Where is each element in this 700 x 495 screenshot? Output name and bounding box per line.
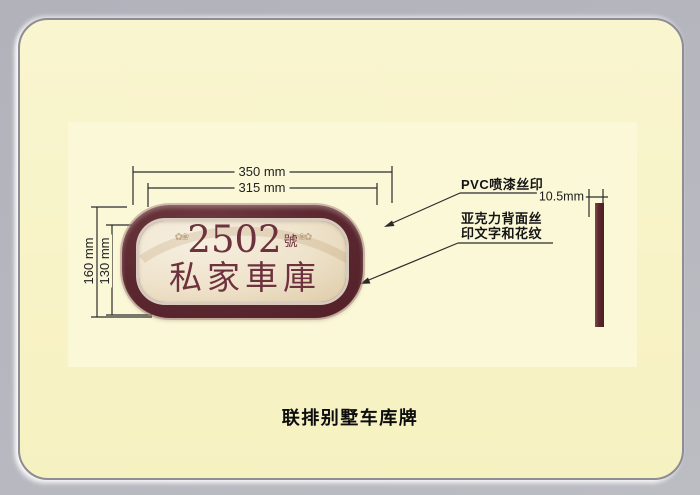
sign-side-view-bar xyxy=(595,203,604,327)
sign-number-suffix: 號 xyxy=(284,234,298,250)
floral-ornament-left: ✿❀ xyxy=(175,232,188,243)
dim-label-outer-width: 350 mm xyxy=(235,165,290,179)
sign-name-text: 私家車庫 xyxy=(139,257,346,299)
annotation-pvc: PVC喷漆丝印 xyxy=(461,177,543,192)
annotation-acrylic-line1: 亚克力背面丝 xyxy=(461,211,542,226)
sign-number-line: ✿❀2502號❀✿ xyxy=(139,221,346,262)
dim-label-inner-width: 315 mm xyxy=(235,181,290,195)
floral-ornament-right: ❀✿ xyxy=(298,232,311,243)
annotation-acrylic-line2: 印文字和花纹 xyxy=(461,226,542,241)
design-proof-canvas: ✿❀2502號❀✿ 私家車庫 350 mm 315 mm 160 mm 130 … xyxy=(0,0,700,495)
proof-caption: 联排别墅车库牌 xyxy=(0,404,700,430)
dim-label-thickness: 10.5mm xyxy=(537,191,586,204)
garage-sign-plate: ✿❀2502號❀✿ 私家車庫 xyxy=(122,205,363,318)
sign-number: 2502 xyxy=(187,221,281,261)
dim-label-outer-height: 160 mm xyxy=(82,235,96,288)
sign-face: ✿❀2502號❀✿ 私家車庫 xyxy=(139,221,346,302)
dim-label-inner-height: 130 mm xyxy=(98,235,112,288)
